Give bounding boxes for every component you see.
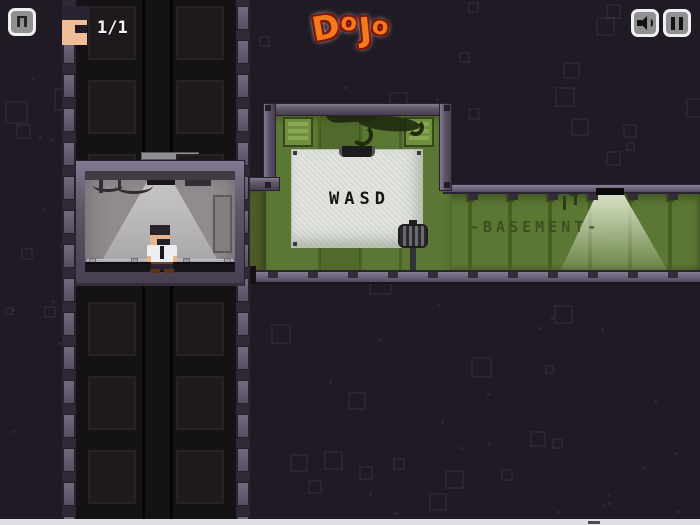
bg-dot	[677, 510, 680, 513]
bg-square	[348, 392, 366, 410]
head-icon-mouth	[75, 25, 87, 33]
bg-square	[626, 142, 635, 151]
wasd-sign-text: WASD	[324, 189, 390, 209]
ceiling-bracket	[548, 194, 558, 200]
bg-dot	[539, 327, 542, 330]
pillar-segment	[63, 414, 75, 438]
floor-bracket	[348, 272, 358, 278]
player-character	[147, 224, 177, 273]
bg-square	[471, 357, 492, 378]
bg-square	[259, 36, 270, 47]
hanging-vines-icon	[351, 124, 373, 146]
bg-dot	[574, 210, 577, 213]
corridor-floor	[243, 270, 700, 284]
bg-square	[359, 466, 373, 480]
bg-square	[563, 62, 580, 79]
bg-dot	[378, 339, 381, 342]
shaft-panel	[176, 376, 224, 430]
pillar-segment	[237, 74, 249, 98]
pillar-segment	[237, 448, 249, 472]
frame-screw	[444, 182, 450, 188]
bg-dot	[12, 430, 15, 433]
sound-button[interactable]	[631, 9, 659, 37]
pillar-segment	[63, 74, 75, 98]
bg-dot	[32, 77, 35, 80]
ceiling-pipe	[185, 180, 211, 186]
player-shoe	[150, 269, 160, 273]
bg-dot	[43, 208, 46, 211]
bg-dot	[460, 447, 463, 450]
room-track	[75, 283, 245, 286]
wall-pipe-detail	[574, 196, 577, 205]
pillar-segment	[63, 380, 75, 404]
player-belt	[151, 262, 173, 264]
bg-square	[554, 305, 573, 324]
bg-square	[571, 118, 589, 136]
frame-screw	[265, 105, 271, 111]
bg-square	[459, 52, 470, 63]
player-tie	[160, 246, 164, 259]
bg-square	[271, 324, 291, 344]
bg-square	[5, 101, 28, 124]
floor-bracket	[588, 272, 598, 278]
game-canvas[interactable]: -BASEMENT- WASD	[0, 0, 700, 525]
bg-square	[21, 248, 33, 260]
pillar-segment	[237, 414, 249, 438]
basement-ceiling	[443, 184, 700, 194]
floor-bracket	[468, 272, 478, 278]
pillar-segment	[237, 6, 249, 30]
floor-bracket	[308, 272, 318, 278]
frame-screw	[265, 182, 271, 188]
bg-dot	[436, 98, 439, 101]
hanging-vines-icon	[407, 119, 424, 136]
bg-square	[468, 108, 480, 120]
bg-square	[468, 2, 479, 13]
bg-dot	[441, 421, 444, 424]
bg-dot	[329, 381, 332, 384]
bg-dot	[50, 139, 53, 142]
bg-dot	[369, 493, 372, 496]
ceiling-bracket	[668, 194, 678, 200]
bg-square	[393, 458, 405, 470]
game-logo: DoJo	[312, 6, 389, 45]
bg-square	[324, 451, 343, 470]
shaft-pillar	[62, 0, 76, 525]
sign-screw	[293, 242, 297, 246]
lives-counter: 1/1	[97, 18, 128, 38]
air-vent-icon	[283, 117, 313, 147]
menu-button[interactable]: Π	[8, 8, 36, 36]
pillar-segment	[63, 244, 75, 268]
bg-dot	[39, 136, 42, 139]
pillar-segment	[237, 482, 249, 506]
bg-square	[686, 98, 700, 118]
pillar-segment	[237, 40, 249, 64]
bg-square	[623, 124, 637, 138]
floor-bracket	[668, 272, 678, 278]
bg-dot	[603, 504, 606, 507]
bg-square	[596, 17, 615, 36]
pause-button[interactable]	[663, 9, 691, 37]
pillar-segment	[237, 312, 249, 336]
shaft-panel	[176, 80, 224, 134]
floor-bracket	[548, 272, 558, 278]
sign-screw	[293, 151, 297, 155]
pillar-segment	[237, 108, 249, 132]
pillar-segment	[63, 278, 75, 302]
menu-glyph: Π	[16, 15, 29, 30]
frame-screw	[444, 105, 450, 111]
bg-dot	[487, 393, 490, 396]
bg-dot	[551, 317, 554, 320]
bg-square	[530, 431, 546, 447]
basement-wall-label: -BASEMENT-	[470, 218, 660, 236]
pillar-segment	[237, 380, 249, 404]
page-scrollbar[interactable]	[0, 519, 700, 525]
room-frame-right	[439, 103, 452, 191]
sign-screw	[417, 151, 421, 155]
head-icon-hair	[62, 6, 90, 20]
room-frame-top	[263, 103, 452, 116]
pause-icon	[671, 17, 683, 30]
shaft-panel	[88, 376, 136, 430]
shaft-panel	[176, 302, 224, 356]
bg-dot	[437, 304, 440, 307]
pillar-segment	[63, 176, 75, 200]
floor-bracket	[428, 272, 438, 278]
ceiling-pipe	[99, 180, 103, 193]
bg-square	[445, 470, 464, 489]
logo-letter: D	[309, 6, 343, 49]
bg-dot	[344, 86, 347, 89]
lives-head-icon	[62, 6, 92, 46]
bg-dot	[557, 511, 560, 514]
bg-square	[606, 4, 621, 19]
pillar-segment	[63, 448, 75, 472]
shaft-panel	[88, 450, 136, 504]
bg-dot	[394, 512, 397, 515]
bg-dot	[675, 452, 678, 455]
bg-dot	[488, 442, 491, 445]
bg-square	[44, 306, 56, 318]
ceiling-lamp	[596, 188, 624, 195]
pillar-segment	[63, 482, 75, 506]
bg-dot	[608, 502, 611, 505]
bg-square	[552, 438, 563, 449]
bg-dot	[12, 309, 15, 312]
bg-dot	[607, 494, 610, 497]
bg-square	[545, 365, 554, 374]
bg-square	[429, 493, 447, 511]
bg-square	[16, 124, 31, 139]
floor-bracket	[508, 272, 518, 278]
bg-square	[308, 480, 322, 494]
speaker-icon	[637, 16, 654, 30]
floor-bracket	[628, 272, 638, 278]
bg-dot	[643, 467, 646, 470]
shaft-panel	[176, 6, 224, 60]
player-hand	[173, 256, 177, 262]
shaft-panel	[88, 80, 136, 134]
shaft-panel	[88, 302, 136, 356]
pillar-segment	[63, 142, 75, 166]
bg-dot	[601, 328, 604, 331]
wall-fixture-icon	[398, 224, 428, 248]
pillar-segment	[63, 108, 75, 132]
wall-pipe-detail	[563, 196, 566, 210]
bg-square	[290, 454, 308, 472]
pillar-segment	[63, 210, 75, 234]
bg-square	[501, 469, 513, 481]
player-shoe	[164, 269, 174, 273]
pillar-segment	[63, 312, 75, 336]
bg-square	[555, 87, 575, 107]
floor-bracket	[268, 272, 278, 278]
bg-dot	[654, 400, 657, 403]
pillar-segment	[237, 346, 249, 370]
ceiling-bracket	[508, 194, 518, 200]
scrollbar-tick	[588, 521, 600, 524]
pillar-segment	[63, 346, 75, 370]
ceiling-bracket	[628, 194, 638, 200]
shaft-panel	[176, 450, 224, 504]
sign-bracket	[339, 146, 375, 157]
logo-letter: o	[370, 11, 391, 41]
ceiling-pipe	[118, 180, 121, 189]
ceiling-bracket	[468, 194, 478, 200]
floor-bracket	[388, 272, 398, 278]
bg-dot	[52, 300, 55, 303]
room-door-panel	[213, 195, 232, 253]
bg-square	[606, 151, 621, 166]
